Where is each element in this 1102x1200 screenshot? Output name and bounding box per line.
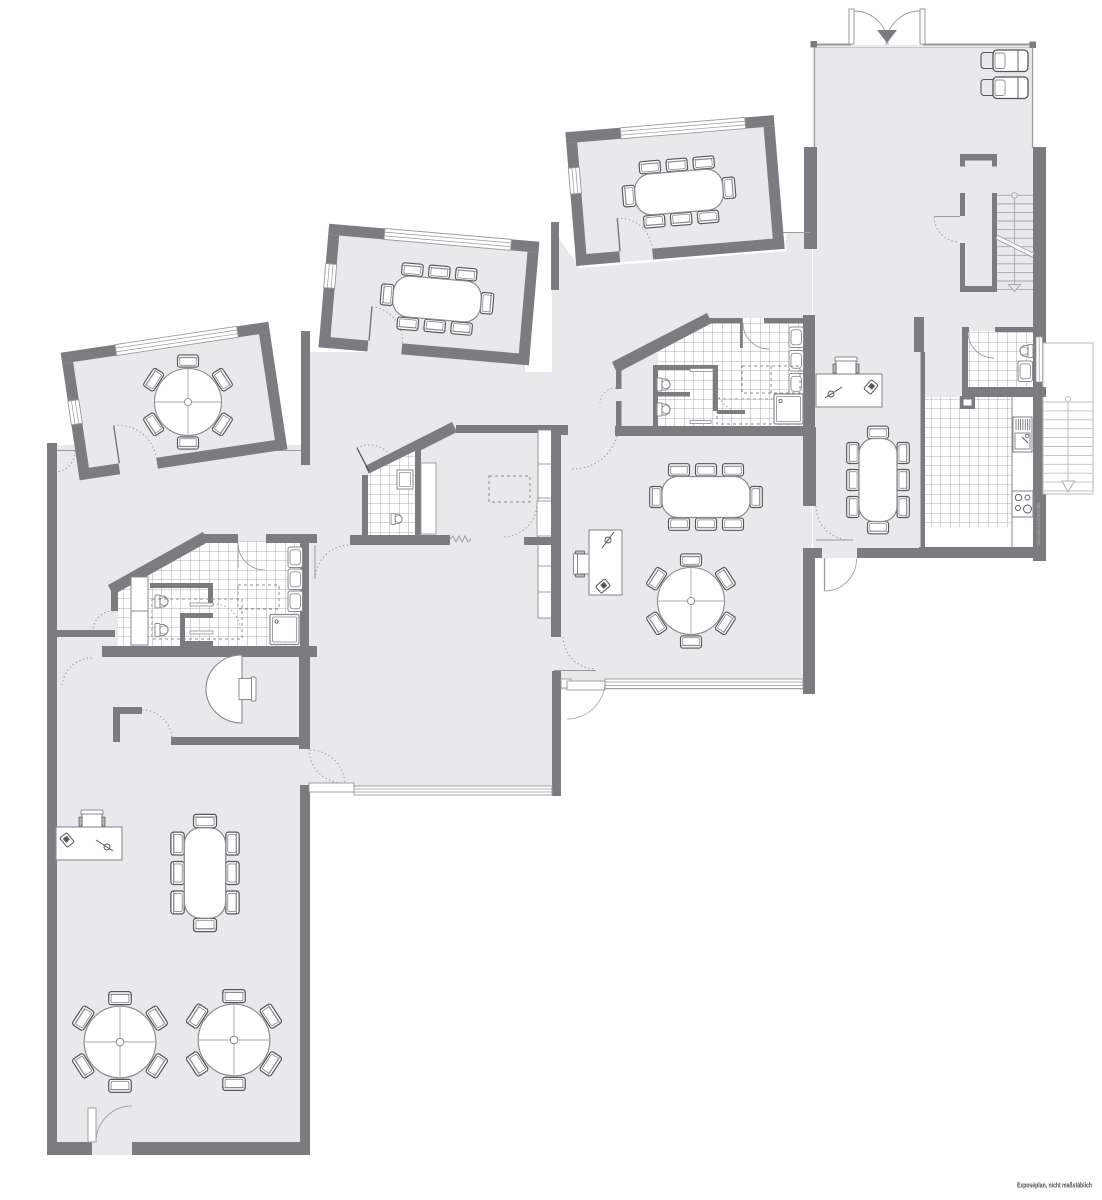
svg-text:Exposéplan, nicht maßstäblich: Exposéplan, nicht maßstäblich: [1017, 1183, 1092, 1190]
svg-text:IllustrationOnlineGrafik: IllustrationOnlineGrafik: [1036, 502, 1041, 545]
